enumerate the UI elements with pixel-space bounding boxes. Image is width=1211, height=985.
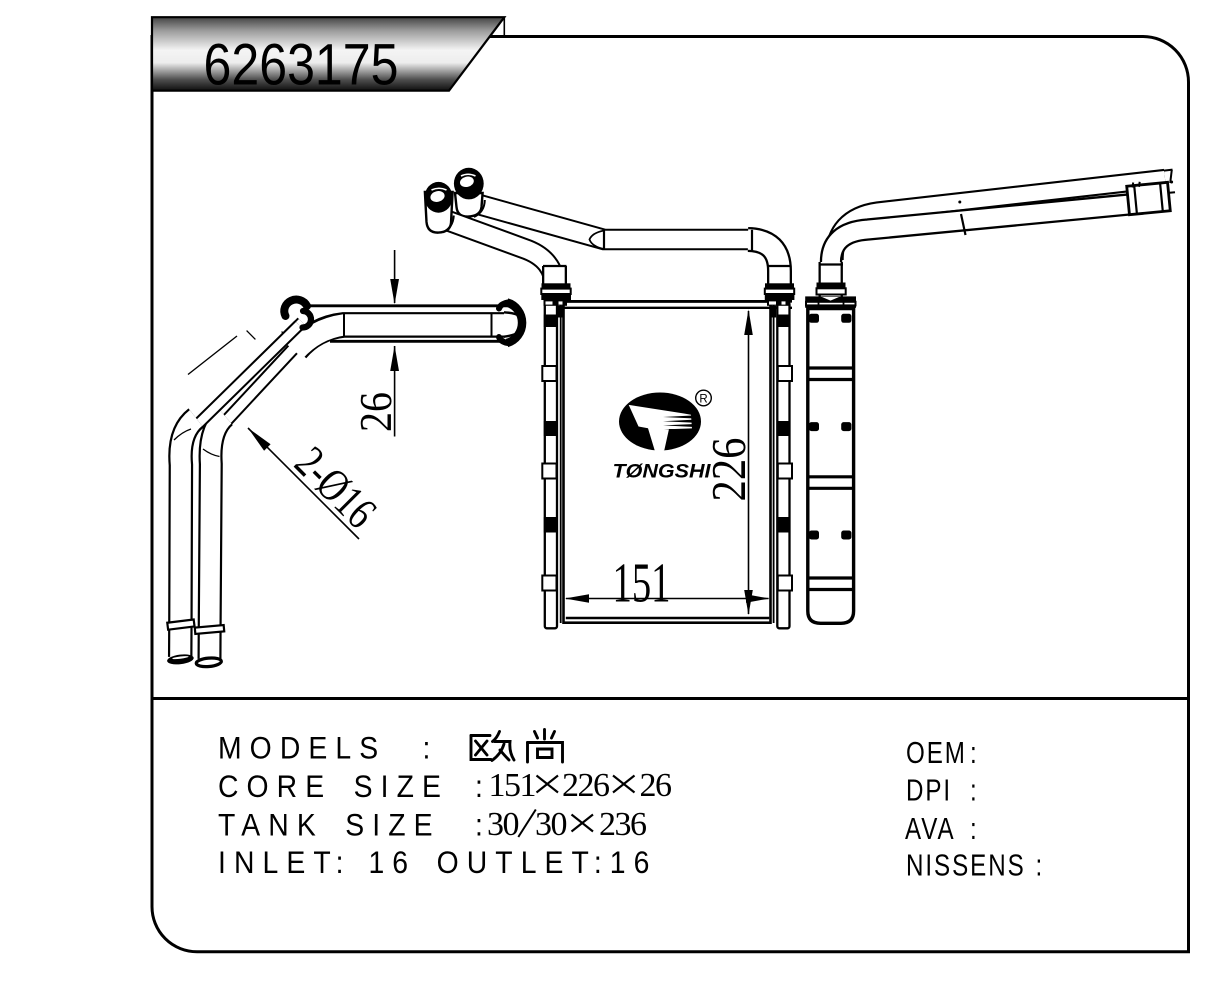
svg-text:TANK SIZE: TANK SIZE <box>218 808 441 843</box>
svg-text:DPI: DPI <box>906 773 952 808</box>
svg-text::: : <box>970 773 979 808</box>
svg-text:236: 236 <box>599 806 646 843</box>
svg-text:16: 16 <box>368 846 416 881</box>
svg-text:R: R <box>699 393 707 405</box>
svg-text:TØNGSHI: TØNGSHI <box>613 461 712 483</box>
svg-text:INLET:: INLET: <box>218 846 352 881</box>
svg-text:151: 151 <box>489 767 536 804</box>
svg-text::: : <box>970 811 979 846</box>
svg-text:AVA: AVA <box>905 811 956 846</box>
svg-text:NISSENS: NISSENS <box>906 848 1026 883</box>
svg-text:30: 30 <box>535 806 567 843</box>
svg-text::: : <box>970 735 979 770</box>
svg-text:OEM: OEM <box>906 735 967 770</box>
svg-text:26: 26 <box>351 392 401 432</box>
svg-text:2-Ø16: 2-Ø16 <box>285 437 386 538</box>
svg-text::: : <box>1036 848 1045 883</box>
svg-text:CORE SIZE: CORE SIZE <box>218 770 449 805</box>
svg-text:6263175: 6263175 <box>204 33 399 98</box>
svg-text:226: 226 <box>562 767 609 804</box>
svg-text:OUTLET:16: OUTLET:16 <box>437 846 658 881</box>
svg-text:MODELS: MODELS <box>218 731 386 766</box>
svg-text::: : <box>422 731 438 766</box>
svg-text:30: 30 <box>487 806 519 843</box>
svg-text:26: 26 <box>640 767 672 804</box>
svg-text:151: 151 <box>613 553 671 615</box>
